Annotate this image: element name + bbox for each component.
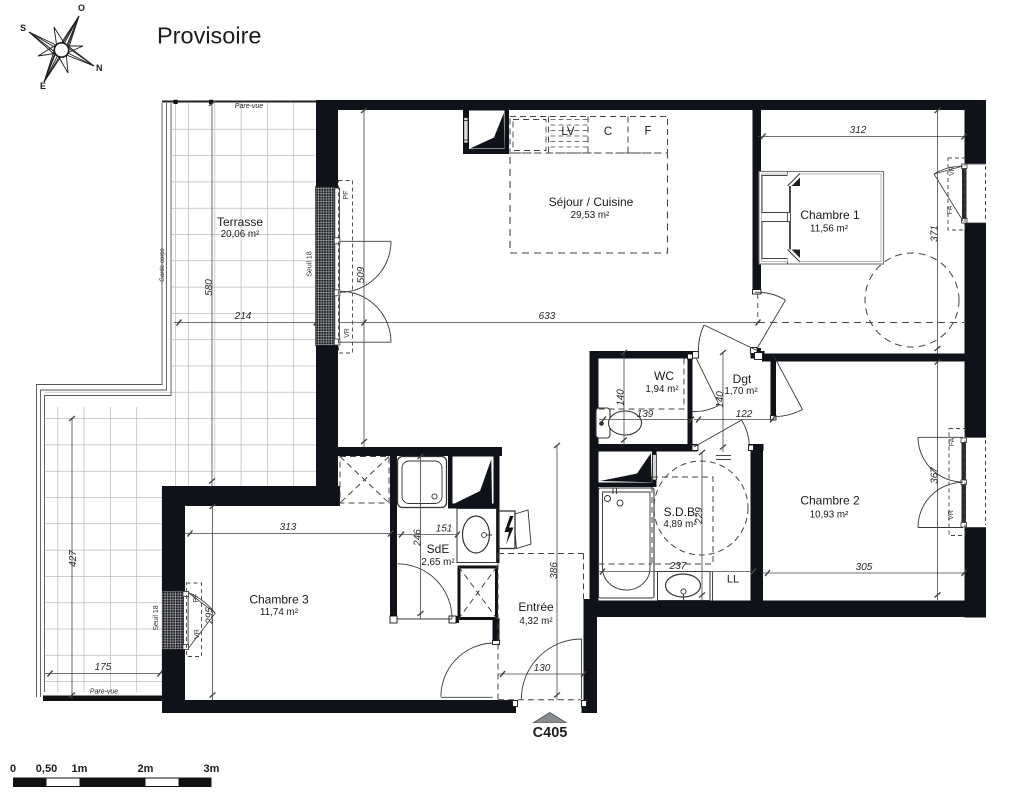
svg-text:Séjour / Cuisine: Séjour / Cuisine xyxy=(549,195,634,209)
svg-text:LL: LL xyxy=(727,574,739,586)
svg-text:151: 151 xyxy=(436,524,453,535)
svg-text:140: 140 xyxy=(616,389,627,406)
svg-text:E: E xyxy=(40,81,46,91)
svg-text:140: 140 xyxy=(715,391,726,408)
svg-text:130: 130 xyxy=(534,663,551,674)
svg-text:427: 427 xyxy=(68,550,79,567)
svg-text:VR: VR xyxy=(948,510,955,520)
svg-text:C405: C405 xyxy=(533,725,568,741)
svg-text:295: 295 xyxy=(205,607,216,625)
svg-text:Chambre 3: Chambre 3 xyxy=(249,593,309,607)
svg-text:Pare-vue: Pare-vue xyxy=(90,689,119,696)
svg-text:S: S xyxy=(20,23,26,33)
svg-text:214: 214 xyxy=(234,311,252,322)
svg-text:PF: PF xyxy=(193,594,200,603)
svg-text:FA: FA xyxy=(949,437,956,446)
svg-text:1,94 m²: 1,94 m² xyxy=(645,384,679,395)
svg-text:FA: FA xyxy=(947,205,954,214)
svg-text:O: O xyxy=(78,3,85,13)
svg-text:371: 371 xyxy=(930,225,941,242)
svg-text:10,93 m²: 10,93 m² xyxy=(810,510,849,521)
svg-text:313: 313 xyxy=(280,522,297,533)
svg-text:1m: 1m xyxy=(72,763,88,775)
svg-text:2,65 m²: 2,65 m² xyxy=(421,557,455,568)
svg-text:VR: VR xyxy=(194,629,201,639)
svg-text:237: 237 xyxy=(669,561,687,572)
svg-text:Provisoire: Provisoire xyxy=(157,23,261,49)
svg-text:305: 305 xyxy=(856,562,873,573)
svg-text:Chambre 2: Chambre 2 xyxy=(800,494,860,508)
svg-text:509: 509 xyxy=(356,266,367,283)
svg-text:Dgt: Dgt xyxy=(733,372,752,386)
svg-text:11,56 m²: 11,56 m² xyxy=(810,224,849,235)
svg-text:Pare-vue: Pare-vue xyxy=(235,103,264,110)
svg-text:20,06 m²: 20,06 m² xyxy=(221,229,260,240)
svg-text:246: 246 xyxy=(413,529,424,547)
svg-text:VR: VR xyxy=(344,328,351,338)
svg-text:633: 633 xyxy=(539,311,556,322)
svg-text:SdE: SdE xyxy=(427,542,450,556)
svg-text:Entrée: Entrée xyxy=(518,600,554,614)
svg-text:Seuil 18: Seuil 18 xyxy=(307,251,314,276)
svg-text:3m: 3m xyxy=(204,763,220,775)
svg-text:386: 386 xyxy=(549,562,560,579)
svg-text:312: 312 xyxy=(850,125,867,136)
svg-text:PF: PF xyxy=(343,191,350,200)
svg-text:VR: VR xyxy=(949,166,956,176)
svg-text:122: 122 xyxy=(736,409,753,420)
svg-text:2m: 2m xyxy=(138,763,154,775)
svg-text:LV: LV xyxy=(561,126,575,138)
svg-text:4,32 m²: 4,32 m² xyxy=(519,616,553,627)
svg-text:175: 175 xyxy=(95,662,112,673)
svg-text:0,50: 0,50 xyxy=(36,763,57,775)
svg-text:580: 580 xyxy=(204,279,215,296)
svg-text:Chambre 1: Chambre 1 xyxy=(800,208,860,222)
svg-text:229: 229 xyxy=(694,507,705,525)
svg-text:N: N xyxy=(96,63,103,73)
svg-text:4,89 m²: 4,89 m² xyxy=(663,519,697,530)
svg-text:0: 0 xyxy=(10,763,16,775)
svg-text:WC: WC xyxy=(654,369,674,383)
svg-text:139: 139 xyxy=(637,409,654,420)
svg-text:29,53 m²: 29,53 m² xyxy=(571,210,610,221)
svg-text:Seuil 18: Seuil 18 xyxy=(153,605,160,630)
svg-text:11,74 m²: 11,74 m² xyxy=(260,607,299,618)
svg-text:F: F xyxy=(644,126,651,138)
svg-text:367: 367 xyxy=(930,467,941,484)
svg-text:Garde-corps: Garde-corps xyxy=(160,248,166,281)
svg-text:Terrasse: Terrasse xyxy=(217,215,263,229)
svg-text:1,70 m²: 1,70 m² xyxy=(724,386,758,397)
svg-text:C: C xyxy=(604,126,612,138)
